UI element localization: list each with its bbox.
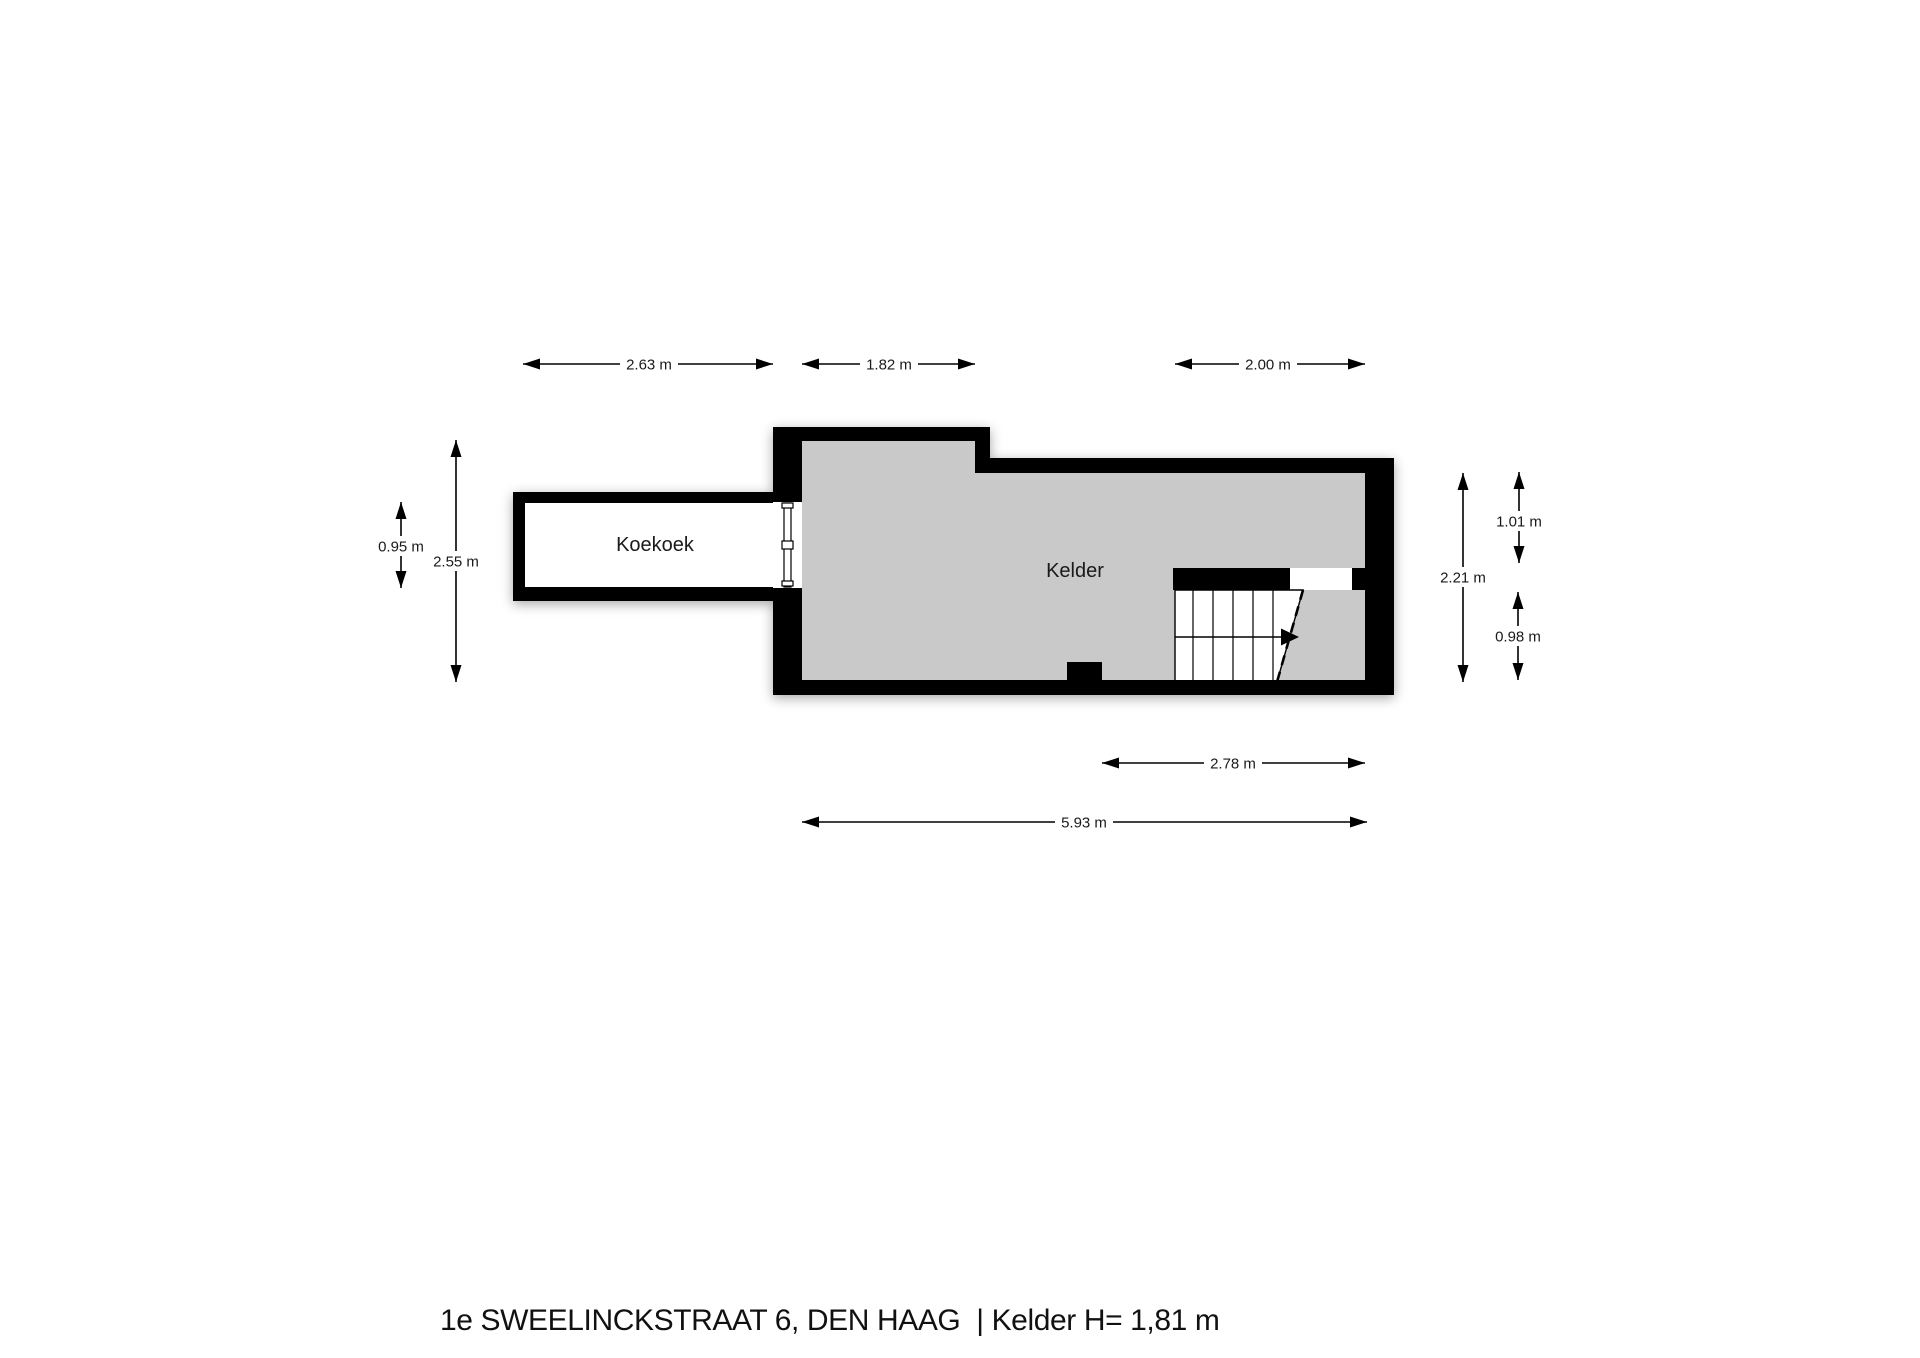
door-opening xyxy=(1290,568,1352,590)
dimension-label: 0.95 m xyxy=(378,539,424,556)
arrowhead-up-icon xyxy=(396,502,407,519)
dimension-2-55m: 2.55 m xyxy=(427,440,485,682)
arrowhead-up-icon xyxy=(451,440,462,457)
dimension-1-01m: 1.01 m xyxy=(1490,472,1548,563)
arrowhead-up-icon xyxy=(1514,472,1525,489)
window-icon xyxy=(782,503,793,587)
arrowhead-right-icon xyxy=(756,359,773,370)
dimension-5-93m: 5.93 m xyxy=(802,812,1367,832)
arrowhead-up-icon xyxy=(1458,473,1469,490)
arrowhead-down-icon xyxy=(1458,665,1469,682)
arrowhead-left-icon xyxy=(523,359,540,370)
dimension-2-78m: 2.78 m xyxy=(1102,753,1365,773)
arrowhead-down-icon xyxy=(396,571,407,588)
dimension-0-95m: 0.95 m xyxy=(372,502,430,588)
dimension-1-82m: 1.82 m xyxy=(802,354,975,374)
dimension-2-21m: 2.21 m xyxy=(1434,473,1492,682)
arrowhead-down-icon xyxy=(1513,663,1524,680)
arrowhead-left-icon xyxy=(802,817,819,828)
arrowhead-right-icon xyxy=(1348,758,1365,769)
dimension-label: 2.00 m xyxy=(1245,357,1291,374)
arrowhead-left-icon xyxy=(1175,359,1192,370)
dimension-label: 2.55 m xyxy=(433,554,479,571)
dimension-0-98m: 0.98 m xyxy=(1489,592,1547,680)
arrowhead-down-icon xyxy=(1514,546,1525,563)
building xyxy=(513,427,1394,695)
dimension-label: 1.82 m xyxy=(866,357,912,374)
dimension-label: 5.93 m xyxy=(1061,815,1107,832)
floor-plan-drawing: Koekoek Kelder 2.63 m 1.82 m 2.00 m xyxy=(0,0,1920,1358)
dimension-2-63m: 2.63 m xyxy=(523,354,773,374)
dimension-label: 2.78 m xyxy=(1210,756,1256,773)
arrowhead-right-icon xyxy=(1348,359,1365,370)
room-label-kelder: Kelder xyxy=(1046,560,1104,582)
dimension-label: 0.98 m xyxy=(1495,629,1541,646)
page-title: 1e SWEELINCKSTRAAT 6, DEN HAAG | Kelder … xyxy=(440,1304,1219,1338)
arrowhead-down-icon xyxy=(451,665,462,682)
arrowhead-left-icon xyxy=(1102,758,1119,769)
arrowhead-left-icon xyxy=(802,359,819,370)
dimension-2-00m: 2.00 m xyxy=(1175,354,1365,374)
dimension-label: 2.63 m xyxy=(626,357,672,374)
room-label-koekoek: Koekoek xyxy=(616,534,695,556)
floor-plan-page: Koekoek Kelder 2.63 m 1.82 m 2.00 m xyxy=(0,0,1920,1358)
dimension-label: 1.01 m xyxy=(1496,514,1542,531)
arrowhead-up-icon xyxy=(1513,592,1524,609)
arrowhead-right-icon xyxy=(1350,817,1367,828)
arrowhead-right-icon xyxy=(958,359,975,370)
dimension-label: 2.21 m xyxy=(1440,570,1486,587)
